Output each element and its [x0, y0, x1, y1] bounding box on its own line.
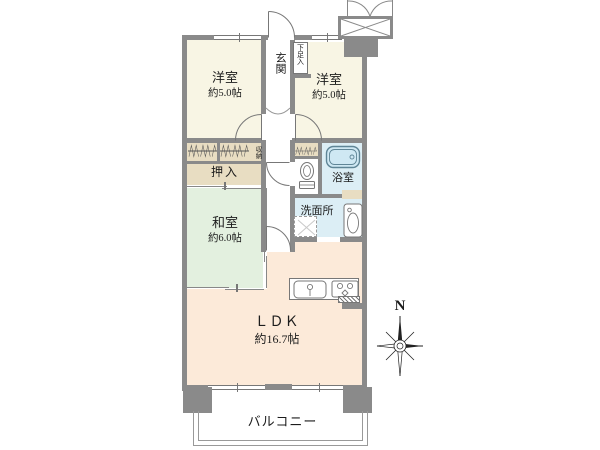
closet-hanger-left-b [220, 142, 249, 160]
front-door-arc [268, 11, 295, 38]
elevator-doors [346, 0, 394, 17]
vanity-sink [343, 203, 363, 238]
bathroom-label: 浴室 [325, 172, 361, 185]
compass-icon [374, 314, 426, 378]
closet-hanger-right [295, 144, 317, 156]
entrance-label: 玄関 [271, 45, 286, 81]
washing-machine [294, 216, 317, 237]
bathtub-icon [325, 145, 361, 169]
door-arc-room-left [235, 114, 262, 141]
door-arc-ldk [266, 226, 291, 251]
shoe-cabinet-label: 下足入 [296, 44, 306, 65]
ldk-label: ＬＤＫ 約16.7帖 [232, 315, 322, 347]
compass-north-label: N [386, 298, 414, 315]
western-room-left-label: 洋室 約5.0帖 [195, 71, 255, 100]
entrance-step-line [266, 106, 290, 120]
oshiire-label: 押入 [205, 166, 245, 180]
grill [338, 296, 360, 303]
japanese-room-label: 和室 約6.0帖 [195, 216, 255, 245]
window-room-left [214, 35, 261, 40]
toilet-icon [297, 160, 317, 191]
door-arc-room-right [295, 114, 322, 141]
washroom-label: 洗面所 [294, 205, 340, 218]
balcony-pillar-right [343, 387, 372, 413]
wall-left [182, 35, 187, 391]
window-ldk-right [292, 385, 343, 390]
floor-plan: 下足入 [0, 0, 600, 450]
balcony-label: バルコニー [235, 415, 330, 430]
closet-hanger-left-a [188, 142, 217, 160]
elevator-lobby-block [344, 39, 378, 57]
kitchen-sink-icon [293, 280, 327, 299]
door-arc-toilet [266, 162, 290, 186]
shoe-cabinet-box: 下足入 [293, 42, 308, 74]
balcony-pillar-left [183, 387, 212, 413]
elevator-shaft [338, 16, 393, 39]
bath-counter [342, 190, 362, 199]
storage-label: 収納 [251, 143, 261, 161]
western-room-right-label: 洋室 約5.0帖 [299, 73, 359, 102]
